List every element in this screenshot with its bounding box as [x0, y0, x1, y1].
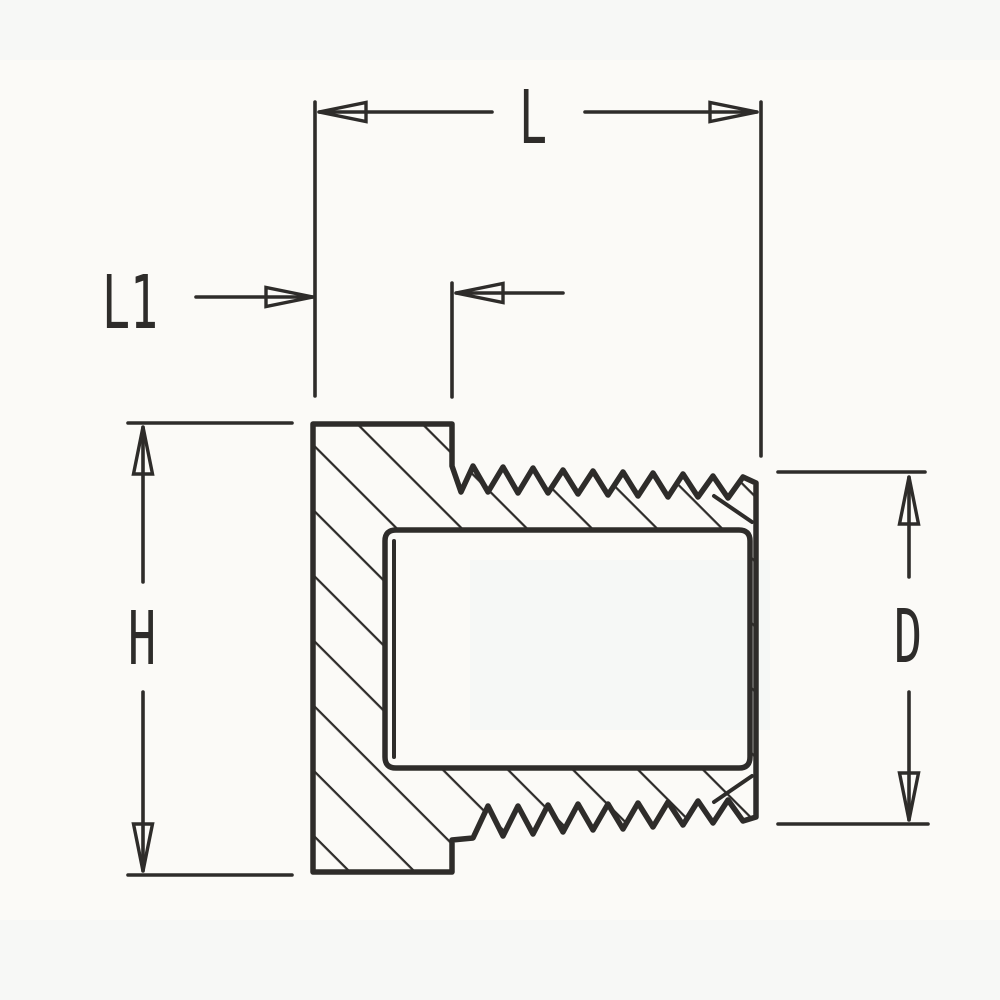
dimension-head-height: H [128, 423, 292, 875]
scan-streak-middle [470, 560, 770, 730]
scan-streak-top [0, 0, 1000, 60]
pipe-plug-cross-section-drawing: L L1 H D [0, 0, 1000, 1000]
dimension-thread-diameter: D [778, 472, 928, 824]
scan-streak-bottom [0, 920, 1000, 1000]
dim-label-head-height: H [128, 596, 156, 682]
technical-drawing-page: L L1 H D [0, 0, 1000, 1000]
dimension-head-length: L1 [102, 260, 563, 397]
dim-label-head-length: L1 [102, 260, 158, 346]
dimension-overall-length: L [315, 75, 761, 456]
dim-label-thread-diameter: D [894, 594, 922, 680]
dim-label-overall-length: L [519, 75, 547, 161]
